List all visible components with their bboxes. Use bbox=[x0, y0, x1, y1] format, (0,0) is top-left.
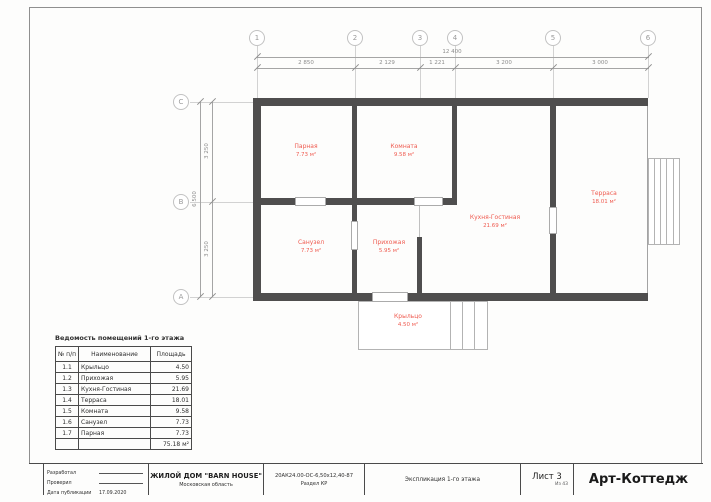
cell-num: 1.6 bbox=[56, 417, 79, 428]
grid-bubble-5: 5 bbox=[545, 30, 561, 46]
cell-area: 21.69 bbox=[151, 384, 192, 395]
cell-area: 7.73 bbox=[151, 417, 192, 428]
title-block: Разработал Проверил Дата публикации 17.0… bbox=[29, 463, 703, 495]
entrance-door-opening bbox=[372, 292, 408, 302]
cell-name: Парная bbox=[79, 428, 151, 439]
dim-line-total-left bbox=[200, 102, 201, 297]
cell-area: 7.73 bbox=[151, 428, 192, 439]
door-opening-parnaya bbox=[295, 197, 326, 206]
grid-bubble-3: 3 bbox=[412, 30, 428, 46]
table-row: 1.4 Терраса 18.01 bbox=[56, 395, 192, 406]
signature-line bbox=[99, 466, 143, 474]
table-row: 1.2 Прихожая 5.95 bbox=[56, 373, 192, 384]
doorway-line bbox=[419, 205, 420, 237]
project-section: Раздел КР bbox=[301, 481, 328, 487]
sheet-number: Лист 3 bbox=[532, 472, 562, 482]
cell-name: Комната bbox=[79, 406, 151, 417]
grid-bubble-label: 1 bbox=[255, 34, 259, 42]
titleblock-spacer-cell bbox=[29, 464, 43, 495]
dim-total-left: 6 500 bbox=[192, 184, 198, 214]
room-name: Крыльцо bbox=[373, 312, 443, 321]
publish-date-value: 17.09.2020 bbox=[99, 491, 126, 496]
terrace-stair-line bbox=[673, 158, 674, 245]
dim-segment: 3 250 bbox=[204, 234, 210, 264]
cell-num: 1.2 bbox=[56, 373, 79, 384]
titleblock-sheet-number: Лист 3 Из 43 bbox=[520, 464, 573, 495]
titleblock-project: ЖИЛОЙ ДОМ "BARN HOUSE" Московская област… bbox=[148, 464, 263, 495]
grid-bubble-6: 6 bbox=[640, 30, 656, 46]
cell-area: 9.58 bbox=[151, 406, 192, 417]
developed-label: Разработал bbox=[47, 471, 99, 476]
signature-row: Дата публикации 17.09.2020 bbox=[44, 486, 148, 496]
grid-bubble-label: B bbox=[179, 198, 184, 206]
wall-parnaya-komnata bbox=[352, 106, 357, 198]
room-area: 21.69 м² bbox=[455, 222, 535, 230]
grid-bubble-label: C bbox=[179, 98, 184, 106]
room-area: 18.01 м² bbox=[574, 198, 634, 206]
wall-kuhnya-terrasa bbox=[550, 106, 556, 293]
schedule-total-value: 75.18 м² bbox=[151, 439, 192, 450]
cell-empty bbox=[56, 439, 79, 450]
room-name: Терраса bbox=[574, 189, 634, 198]
porch-step-line bbox=[474, 301, 475, 350]
grid-extension-line bbox=[420, 46, 421, 98]
table-row: 1.5 Комната 9.58 bbox=[56, 406, 192, 417]
room-label-sanuzel: Санузел 7.73 м² bbox=[281, 238, 341, 255]
titleblock-code: 20АК24.00-ОС-6,50х12,40-87 Раздел КР bbox=[263, 464, 364, 495]
cell-num: 1.4 bbox=[56, 395, 79, 406]
signature-line bbox=[99, 476, 143, 484]
dim-line-total-top bbox=[257, 57, 649, 58]
room-name: Парная bbox=[276, 142, 336, 151]
door-opening-sanuzel bbox=[351, 221, 358, 250]
table-row: 1.3 Кухня-Гостиная 21.69 bbox=[56, 384, 192, 395]
schedule-header-num: № п/п bbox=[56, 347, 79, 362]
room-name: Санузел bbox=[281, 238, 341, 247]
cell-area: 5.95 bbox=[151, 373, 192, 384]
room-label-parnaya: Парная 7.73 м² bbox=[276, 142, 336, 159]
grid-bubble-label: 4 bbox=[453, 34, 457, 42]
cell-area: 4.50 bbox=[151, 362, 192, 373]
cell-num: 1.1 bbox=[56, 362, 79, 373]
table-row: 1.6 Санузел 7.73 bbox=[56, 417, 192, 428]
cell-num: 1.5 bbox=[56, 406, 79, 417]
cell-name: Прихожая bbox=[79, 373, 151, 384]
signature-row: Разработал bbox=[44, 466, 148, 476]
grid-extension-line bbox=[553, 46, 554, 98]
titleblock-sheet-title: Экспликация 1-го этажа bbox=[364, 464, 520, 495]
grid-bubble-label: A bbox=[179, 293, 184, 301]
wall-left bbox=[253, 98, 261, 301]
project-region: Московская область bbox=[179, 482, 233, 488]
porch-step-line bbox=[450, 301, 451, 350]
terrace-stair-line bbox=[660, 158, 661, 245]
wall-bottom bbox=[253, 293, 648, 301]
wall-top bbox=[253, 98, 648, 106]
porch-step-line bbox=[462, 301, 463, 350]
dim-segment: 3 250 bbox=[204, 136, 210, 166]
dim-segment: 3 200 bbox=[484, 60, 524, 66]
room-label-kuhnya-gostinaya: Кухня-Гостиная 21.69 м² bbox=[455, 213, 535, 230]
cell-empty bbox=[79, 439, 151, 450]
grid-bubble-C: C bbox=[173, 94, 189, 110]
room-area: 5.95 м² bbox=[359, 247, 419, 255]
room-label-prihozhaya: Прихожая 5.95 м² bbox=[359, 238, 419, 255]
schedule-header-name: Наименование bbox=[79, 347, 151, 362]
table-row: 1.7 Парная 7.73 bbox=[56, 428, 192, 439]
room-label-terrasa: Терраса 18.01 м² bbox=[574, 189, 634, 206]
sheet-title: Экспликация 1-го этажа bbox=[405, 477, 480, 483]
titleblock-brand: Арт-Коттедж bbox=[573, 464, 703, 495]
project-code: 20АК24.00-ОС-6,50х12,40-87 bbox=[275, 473, 353, 479]
grid-bubble-2: 2 bbox=[347, 30, 363, 46]
grid-bubble-A: A bbox=[173, 289, 189, 305]
room-schedule: Ведомость помещений 1-го этажа № п/п Наи… bbox=[55, 334, 184, 450]
room-area: 7.73 м² bbox=[276, 151, 336, 159]
schedule-title: Ведомость помещений 1-го этажа bbox=[55, 334, 184, 342]
room-name: Комната bbox=[374, 142, 434, 151]
cell-name: Крыльцо bbox=[79, 362, 151, 373]
cell-name: Кухня-Гостиная bbox=[79, 384, 151, 395]
room-area: 9.58 м² bbox=[374, 151, 434, 159]
terrace-stair-line bbox=[654, 158, 655, 245]
schedule-table: № п/п Наименование Площадь 1.1 Крыльцо 4… bbox=[55, 346, 192, 450]
cell-num: 1.7 bbox=[56, 428, 79, 439]
checked-label: Проверил bbox=[47, 481, 99, 486]
room-label-krylco: Крыльцо 4.50 м² bbox=[373, 312, 443, 329]
dim-segment: 2 129 bbox=[367, 60, 407, 66]
grid-bubble-label: 3 bbox=[418, 34, 422, 42]
grid-bubble-B: B bbox=[173, 194, 189, 210]
cell-name: Санузел bbox=[79, 417, 151, 428]
titleblock-signatures: Разработал Проверил Дата публикации 17.0… bbox=[43, 464, 148, 495]
grid-extension-line bbox=[355, 46, 356, 98]
drawing-sheet: 1 2 3 4 5 6 12 400 2 850 2 129 1 221 3 2… bbox=[0, 0, 711, 502]
cell-name: Терраса bbox=[79, 395, 151, 406]
cell-num: 1.3 bbox=[56, 384, 79, 395]
company-brand: Арт-Коттедж bbox=[589, 472, 688, 487]
room-area: 7.73 м² bbox=[281, 247, 341, 255]
signature-row: Проверил bbox=[44, 476, 148, 486]
publish-date-label: Дата публикации bbox=[47, 491, 99, 496]
grid-bubble-1: 1 bbox=[249, 30, 265, 46]
room-name: Кухня-Гостиная bbox=[455, 213, 535, 222]
sheet-of: Из 43 bbox=[555, 482, 568, 487]
door-opening-komnata bbox=[414, 197, 443, 206]
dim-total-top: 12 400 bbox=[432, 49, 472, 55]
table-row: 1.1 Крыльцо 4.50 bbox=[56, 362, 192, 373]
grid-bubble-4: 4 bbox=[447, 30, 463, 46]
schedule-header-row: № п/п Наименование Площадь bbox=[56, 347, 192, 362]
grid-bubble-label: 6 bbox=[646, 34, 650, 42]
project-title: ЖИЛОЙ ДОМ "BARN HOUSE" bbox=[150, 472, 262, 480]
terrace-stair-line bbox=[666, 158, 667, 245]
room-area: 4.50 м² bbox=[373, 321, 443, 329]
schedule-header-area: Площадь bbox=[151, 347, 192, 362]
room-label-komnata: Комната 9.58 м² bbox=[374, 142, 434, 159]
cell-area: 18.01 bbox=[151, 395, 192, 406]
room-name: Прихожая bbox=[359, 238, 419, 247]
grid-bubble-label: 2 bbox=[353, 34, 357, 42]
schedule-total-row: 75.18 м² bbox=[56, 439, 192, 450]
dim-segment: 3 000 bbox=[580, 60, 620, 66]
door-opening-terrasa bbox=[549, 207, 557, 234]
wall-komnata-kuhnya bbox=[452, 106, 457, 205]
terrace-stairs-outline bbox=[648, 158, 680, 245]
grid-bubble-label: 5 bbox=[551, 34, 555, 42]
dim-segment: 2 850 bbox=[286, 60, 326, 66]
